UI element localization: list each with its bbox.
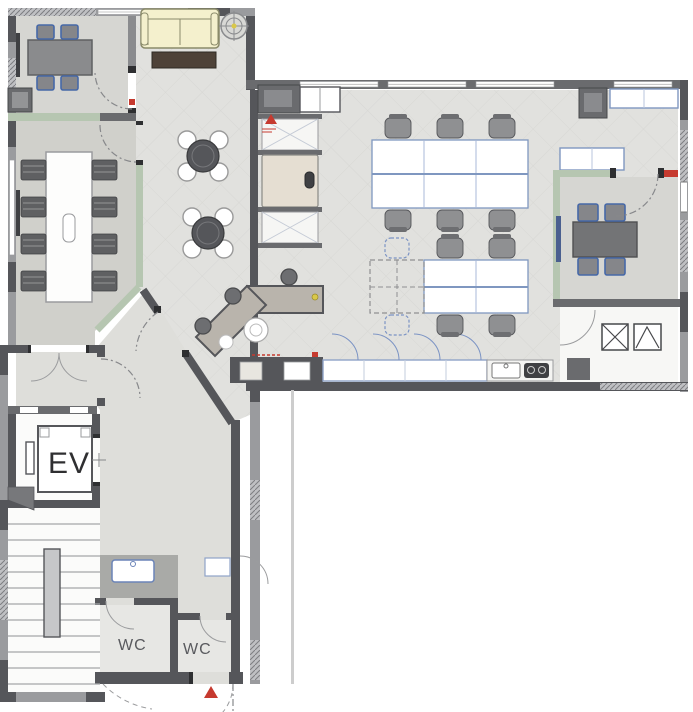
- duct-chevron-icon: [634, 324, 661, 350]
- meeting-table-right: [573, 222, 637, 257]
- column-se: [567, 358, 590, 380]
- wall-display: [556, 216, 561, 262]
- fire-marker-right: [664, 170, 678, 177]
- stair-stringer: [44, 549, 60, 637]
- duct-x-icon: [602, 324, 628, 350]
- wc-right-label: WC: [183, 641, 212, 658]
- counter-stool: [225, 288, 241, 304]
- office-windows: [300, 82, 672, 88]
- coffee-table: [152, 52, 216, 68]
- door-handle: [305, 172, 314, 188]
- kitchen-marker: [312, 352, 318, 357]
- washbasin: [112, 560, 154, 582]
- counter-stool: [281, 269, 297, 285]
- hall-entrance-icon: [204, 686, 218, 698]
- entrance-door-arc-2: [103, 684, 152, 709]
- storage-unit: [258, 114, 322, 248]
- fire-marker-meeting: [129, 99, 135, 105]
- wc-cabinet: [205, 558, 230, 576]
- kitchenette: [487, 360, 553, 381]
- wc-left-label: WC: [118, 637, 147, 654]
- desk-island-1: [372, 114, 528, 232]
- floor-plan-drawing: EV WC WC: [0, 0, 693, 712]
- floor-plan-canvas: EV WC WC: [0, 0, 693, 712]
- counter-stool: [195, 318, 211, 334]
- kitchen-sink: [492, 363, 520, 378]
- elevator-label: EV: [48, 447, 90, 480]
- wall-screen: [16, 33, 20, 77]
- elevator-counterweight: [26, 442, 34, 474]
- wall-screen-2: [16, 190, 20, 236]
- counter-sink: [244, 318, 268, 342]
- meeting-table: [28, 40, 92, 75]
- cable-grommet: [63, 214, 75, 242]
- vestibule-floor: [16, 352, 97, 406]
- counter-lamp-icon: [312, 294, 318, 300]
